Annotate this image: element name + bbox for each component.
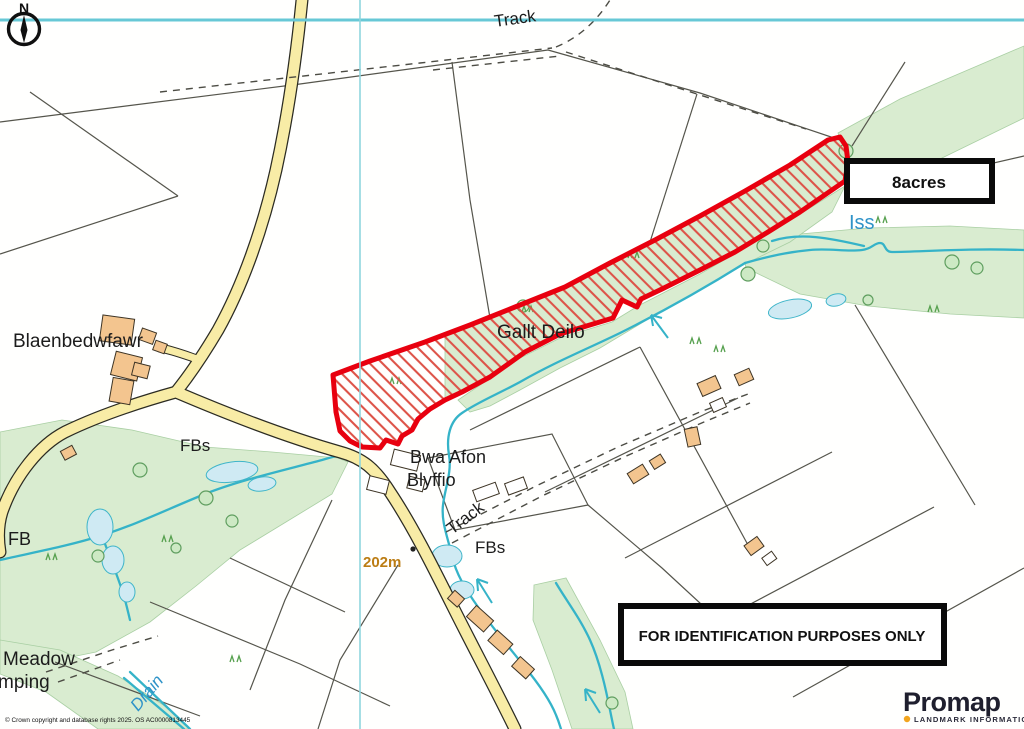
area-badge: 8acres [847,161,992,201]
label-spot-height: 202m [363,554,401,571]
spot-height-dot [410,546,415,551]
map-viewport: Track Blaenbedwfawr Gallt Deilo Bwa Afon… [0,0,1024,729]
identification-notice-label: FOR IDENTIFICATION PURPOSES ONLY [639,628,926,645]
label-blaenbedwfawr: Blaenbedwfawr [13,331,144,352]
promap-logo-text: Promap [903,687,1001,717]
label-fb-west: FB [8,529,31,549]
os-map: Track Blaenbedwfawr Gallt Deilo Bwa Afon… [0,0,1024,729]
label-fbs-west: FBs [180,436,210,455]
area-badge-label: 8acres [892,173,946,192]
label-meadow-2: mping [0,672,50,693]
label-fbs-mid: FBs [475,538,505,557]
label-meadow-1: Meadow [3,649,75,670]
compass-north-label: N [19,0,29,16]
label-iss: Iss [849,212,875,234]
logo-dot-icon [904,716,910,722]
copyright-notice: © Crown copyright and database rights 20… [5,716,191,724]
label-gallt-deilo: Gallt Deilo [497,322,585,343]
label-bwa-afon-2: Blyffio [407,470,456,490]
promap-logo-tagline: LANDMARK INFORMATION [914,715,1024,724]
identification-notice: FOR IDENTIFICATION PURPOSES ONLY [621,606,944,663]
label-bwa-afon-1: Bwa Afon [410,447,486,467]
